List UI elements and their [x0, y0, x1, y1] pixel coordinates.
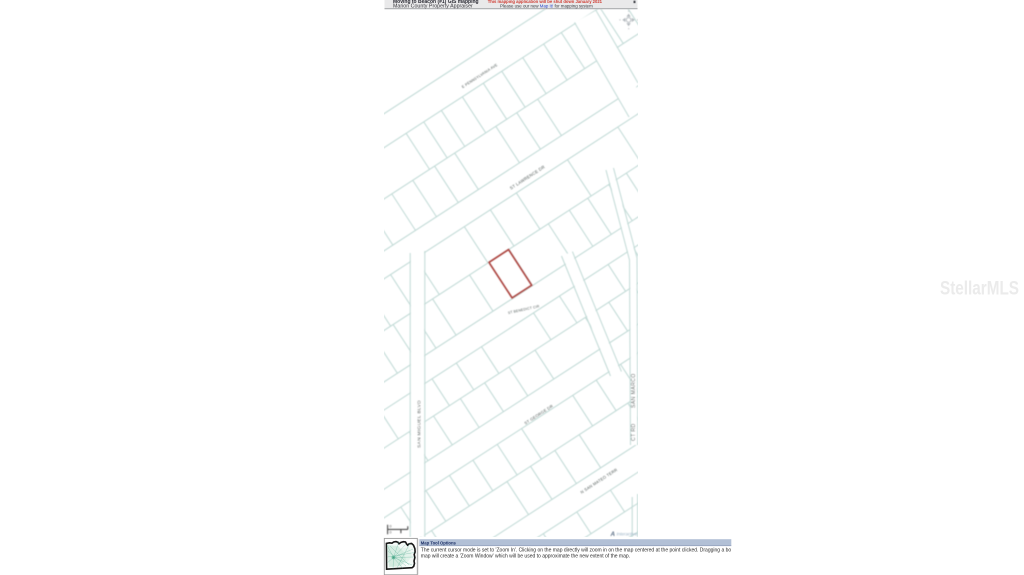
svg-text:0: 0	[390, 530, 392, 534]
svg-text:ST BENEDICT CIR: ST BENEDICT CIR	[508, 304, 541, 315]
svg-text:ST GEORGE DR: ST GEORGE DR	[523, 403, 554, 425]
svg-text:StellarMLS: StellarMLS	[940, 279, 1019, 300]
svg-text:Please use our new Map It! for: Please use our new Map It! for mapping s…	[500, 4, 593, 9]
svg-text:CT RD: CT RD	[631, 423, 637, 441]
svg-text:Map Tool Options: Map Tool Options	[421, 540, 457, 545]
svg-text:Interactive: Interactive	[617, 531, 638, 536]
svg-text:SAN MIGUEL BLVD: SAN MIGUEL BLVD	[416, 400, 422, 448]
svg-text:N SAN MATEO TERR: N SAN MATEO TERR	[579, 467, 618, 495]
svg-text:0: 0	[390, 525, 392, 529]
svg-text:A: A	[610, 531, 616, 538]
svg-text:SAN MARCO: SAN MARCO	[631, 373, 637, 408]
svg-text:The current cursor mode is set: The current cursor mode is set to 'Zoom …	[421, 547, 761, 553]
svg-text:map will create a 'Zoom Window: map will create a 'Zoom Window' which wi…	[421, 553, 630, 559]
